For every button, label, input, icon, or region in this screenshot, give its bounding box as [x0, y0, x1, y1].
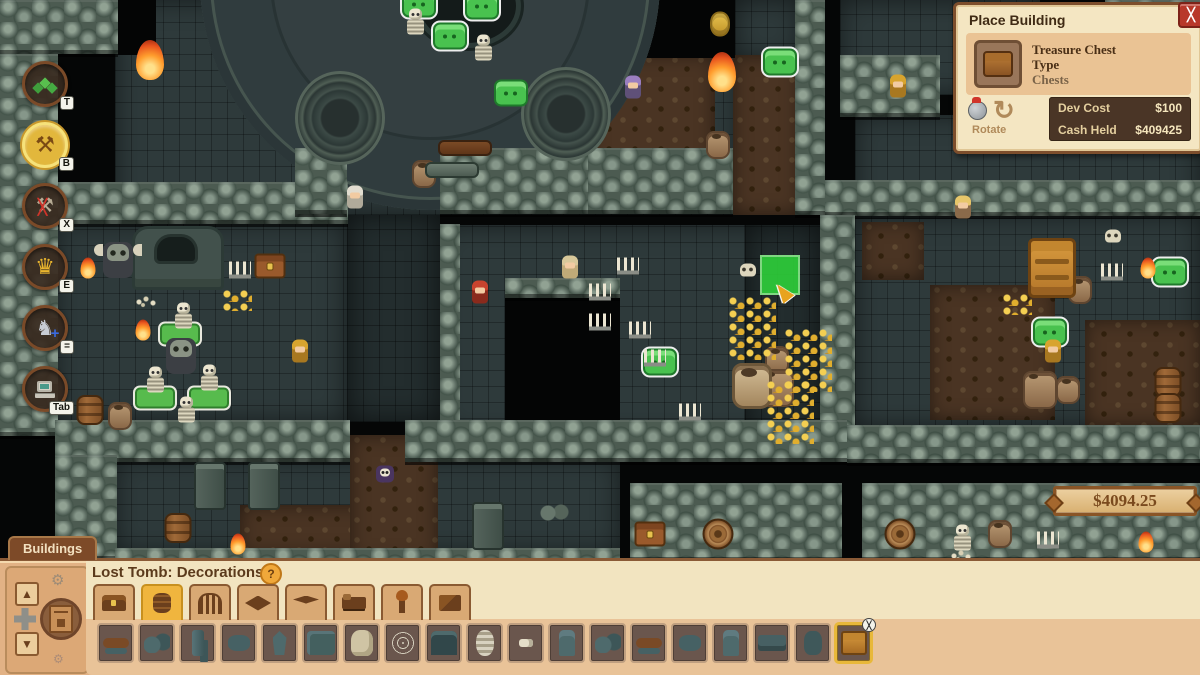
category-tab-floors[interactable] [285, 584, 327, 620]
tool-icon[interactable]: ⚙ [53, 652, 64, 666]
log-gray-sprite [425, 162, 479, 178]
help-icon[interactable]: ? [260, 563, 282, 585]
toolbar-button-knight[interactable]: ♞= [22, 305, 68, 351]
stone-wall [847, 425, 1200, 463]
skeleton-sprite [145, 367, 165, 394]
stone-wall [440, 224, 460, 424]
buildings-tab[interactable]: Buildings [8, 536, 97, 560]
pot-sprite [706, 131, 730, 159]
stone-wall [0, 0, 118, 54]
money-amount: $4094.25 [1093, 491, 1157, 511]
floor-stonedark [347, 215, 440, 422]
decoration-slot-17[interactable] [753, 623, 790, 663]
pot-sprite [108, 402, 132, 430]
floors-icon [293, 596, 319, 604]
dev-cost-label: Dev Cost [1058, 101, 1110, 115]
decoration-slot-14[interactable] [630, 623, 667, 663]
category-tab-barrels[interactable] [141, 584, 183, 620]
category-tab-chests[interactable] [93, 584, 135, 620]
rock-decoration-icon [228, 635, 250, 651]
category-tab-torches[interactable] [381, 584, 423, 620]
category-tab-walls[interactable] [429, 584, 471, 620]
decoration-slot-2[interactable] [138, 623, 175, 663]
char-gold-sprite [292, 342, 308, 363]
computer-icon [35, 381, 55, 398]
decoration-slot-15[interactable] [671, 623, 708, 663]
decoration-slot-6[interactable] [302, 623, 339, 663]
flame-sprite [136, 320, 151, 341]
place-building-title: Place Building [956, 5, 1200, 33]
remove-badge-icon[interactable]: ╳ [862, 618, 876, 632]
rotate-label: Rotate [972, 124, 1006, 136]
gold-sprite [222, 289, 252, 311]
build-icon: ⚒ [35, 134, 55, 156]
close-icon[interactable]: ╳ [1178, 2, 1200, 28]
slime-sprite [1153, 259, 1187, 286]
candles-sprite [589, 284, 611, 301]
skeleton-sprite [952, 525, 972, 552]
treasure-chest-icon [983, 51, 1013, 77]
chestgold-sprite [1028, 238, 1076, 298]
place-building-panel: Place Building ╳ Treasure Chest Type Che… [953, 2, 1200, 154]
category-tab-carpets[interactable] [237, 584, 279, 620]
candles-sprite [1037, 532, 1059, 549]
decoration-slot-18[interactable] [794, 623, 831, 663]
rubble-decoration-icon [144, 633, 170, 653]
log-sprite [438, 140, 492, 156]
stone-wall [820, 215, 855, 435]
torches-icon [399, 599, 405, 613]
slime-sprite [433, 23, 467, 50]
floor-dirt [1085, 320, 1200, 425]
hotkey-badge: B [59, 157, 74, 171]
log-decoration-icon [103, 638, 129, 648]
knight-icon: ♞ [36, 318, 55, 339]
tower-sprite [295, 71, 385, 165]
building-thumbnail [974, 40, 1022, 88]
pot-sprite [988, 520, 1012, 548]
beehive-sprite [710, 12, 730, 37]
toolbar-button-demolish[interactable]: ⚒X [22, 183, 68, 229]
hotkey-badge: E [59, 279, 74, 293]
cash-held-label: Cash Held [1058, 123, 1117, 137]
toolbar-button-terrain[interactable]: ◆T [22, 61, 68, 107]
building-type-label: Type [1032, 57, 1116, 72]
panel-header: Lost Tomb: Decorations [92, 564, 263, 581]
chestwood-sprite [255, 254, 286, 279]
skullstatue-sprite [166, 338, 196, 374]
floor-dirt [862, 222, 924, 280]
candles-sprite [644, 350, 666, 367]
gold-big-sprite [728, 296, 776, 360]
buildings-mode-button[interactable] [40, 598, 82, 640]
tiny-decoration-icon [519, 639, 533, 647]
hotkey-badge: T [60, 96, 74, 110]
char-gold-sprite [1045, 342, 1061, 363]
skeleton-sprite [176, 397, 196, 424]
beds-icon [342, 597, 366, 609]
scroll-down-button[interactable]: ▼ [15, 632, 39, 656]
toolbar-button-build[interactable]: ⚒B [22, 122, 68, 168]
flame-sprite [1139, 532, 1154, 553]
char-white-sprite [347, 188, 363, 209]
candles-sprite [229, 262, 251, 279]
swirl-decoration-icon [476, 630, 494, 656]
crown-icon: ♛ [35, 256, 55, 278]
cost-box: Dev Cost $100 Cash Held $409425 [1049, 97, 1191, 141]
carpets-icon [245, 596, 271, 611]
barrels-icon [153, 593, 171, 613]
rock-decoration-icon [679, 635, 701, 651]
rocks-sprite [540, 503, 570, 521]
dev-cost-value: $100 [1155, 101, 1182, 115]
sack-decoration-icon [804, 631, 822, 655]
log-decoration-icon [636, 638, 662, 648]
toolbar-button-crown[interactable]: ♛E [22, 244, 68, 290]
decoration-items: ╳ [97, 623, 872, 663]
terrain-icon: ◆ [39, 75, 51, 90]
left-toolbar: ◆T⚒B⚒X♛E♞=Tab [22, 61, 68, 412]
gold-sprite [1002, 293, 1032, 315]
cash-held-row: Cash Held $409425 [1058, 123, 1182, 137]
category-tab-beds[interactable] [333, 584, 375, 620]
imp-sprite [376, 466, 394, 483]
chests-icon [102, 595, 126, 611]
decoration-slot-4[interactable] [220, 623, 257, 663]
flame-sprite [1141, 258, 1156, 279]
char-gold-sprite [890, 77, 906, 98]
decoration-slot-9[interactable] [425, 623, 462, 663]
slime-sprite [763, 49, 797, 76]
skeleton-sprite [473, 35, 493, 62]
bomb-icon[interactable] [968, 101, 987, 120]
category-tabs [93, 584, 471, 620]
rotate-icon[interactable]: ↻ [993, 97, 1015, 123]
slab-decoration-icon [758, 635, 786, 651]
candles-sprite [1101, 264, 1123, 281]
gates-icon [198, 593, 222, 614]
rubble-decoration-icon [595, 633, 621, 653]
statue-decoration-icon [559, 630, 575, 656]
gate-decoration-icon [431, 631, 457, 655]
barrel-sprite [165, 513, 192, 543]
cash-held-value: $409425 [1135, 123, 1182, 137]
slime-plain-sprite [494, 80, 528, 107]
pillar-sprite [472, 502, 504, 550]
decoration-slot-5[interactable] [261, 623, 298, 663]
panel-side-controls: ⚙ ▲ ▼ ⚙ [5, 566, 89, 674]
buildings-panel-main: Lost Tomb: Decorations ? ╳ [86, 561, 1200, 675]
barrel-sprite [1155, 393, 1182, 423]
candles-sprite [589, 314, 611, 331]
flame-sprite [81, 258, 96, 279]
gear-icon[interactable]: ⚙ [51, 571, 64, 589]
rotate-controls: ↻ [968, 97, 1015, 123]
slime-sprite [465, 0, 499, 20]
game-screen: ◆T⚒B⚒X♛E♞=Tab $4094.25 Place Building ╳ … [0, 0, 1200, 675]
tower-sprite [521, 67, 611, 161]
hotkey-badge: = [60, 340, 74, 354]
skeleton-sprite [405, 9, 425, 36]
decoration-slot-1[interactable] [97, 623, 134, 663]
skeleton-sprite [199, 365, 219, 392]
stone-wall [825, 180, 1200, 216]
decoration-slot-12[interactable] [548, 623, 585, 663]
hotkey-badge: Tab [49, 401, 74, 415]
decoration-slot-16[interactable] [712, 623, 749, 663]
pot-big-sprite [1023, 371, 1057, 409]
category-tab-gates[interactable] [189, 584, 231, 620]
scroll-up-button[interactable]: ▲ [15, 582, 39, 606]
pelt-decoration-icon [351, 630, 373, 656]
decoration-slot-13[interactable] [589, 623, 626, 663]
skeleton-sprite [173, 303, 193, 330]
skull-sprite [1105, 230, 1121, 243]
floor-dirt [733, 55, 800, 215]
skullstatue-winged-sprite [103, 242, 133, 278]
place-building-footer: ↻ Rotate Dev Cost $100 Cash Held $409425 [966, 97, 1191, 143]
hotkey-badge: X [59, 218, 74, 232]
barrel-top-sprite [885, 519, 916, 550]
barrel-top-sprite [703, 519, 734, 550]
demolish-icon: ⚒ [36, 196, 54, 216]
candles-sprite [629, 322, 651, 339]
tomb-sprite [132, 226, 224, 290]
pillar-sprite [248, 462, 280, 510]
candles-sprite [679, 404, 701, 421]
decoration-slot-3[interactable] [179, 623, 216, 663]
barrel-sprite [77, 395, 104, 425]
statue-decoration-icon [723, 630, 739, 656]
toolbar-button-computer[interactable]: Tab [22, 366, 68, 412]
decoration-slot-19[interactable]: ╳ [835, 623, 872, 663]
decoration-slot-11[interactable] [507, 623, 544, 663]
walls-icon [439, 595, 461, 611]
decoration-slot-8[interactable] [384, 623, 421, 663]
decoration-slot-7[interactable] [343, 623, 380, 663]
skull-sprite [740, 264, 756, 277]
wall-decoration-icon [307, 631, 335, 655]
selected-building-card: Treasure Chest Type Chests [966, 33, 1191, 95]
pillar-decoration-icon [192, 630, 204, 656]
flame-sprite [231, 534, 246, 555]
char-blonde-sprite [955, 198, 971, 219]
chestwood-sprite [635, 522, 666, 547]
char-purple-sprite [625, 78, 641, 99]
move-pad-icon[interactable] [14, 608, 36, 630]
money-badge: $4094.25 [1053, 486, 1197, 516]
stone-wall [795, 0, 825, 215]
candles-sprite [617, 258, 639, 275]
chest-decoration-icon [841, 631, 867, 655]
building-info: Treasure Chest Type Chests [1032, 42, 1116, 87]
building-category: Chests [1032, 72, 1116, 87]
building-name: Treasure Chest [1032, 42, 1116, 57]
pillar-sprite [194, 462, 226, 510]
gold-big-sprite [766, 380, 814, 444]
obelisk-decoration-icon [273, 631, 287, 655]
web-decoration-icon [392, 632, 414, 654]
bones-sprite [135, 296, 159, 308]
decoration-slot-10[interactable] [466, 623, 503, 663]
buildings-panel: Buildings ⚙ ▲ ▼ ⚙ Lost Tomb: Decorations… [0, 558, 1200, 675]
dev-cost-row: Dev Cost $100 [1058, 101, 1182, 115]
pot-sprite [1056, 376, 1080, 404]
char-red-sprite [472, 283, 488, 304]
char-hooded-sprite [562, 258, 578, 279]
